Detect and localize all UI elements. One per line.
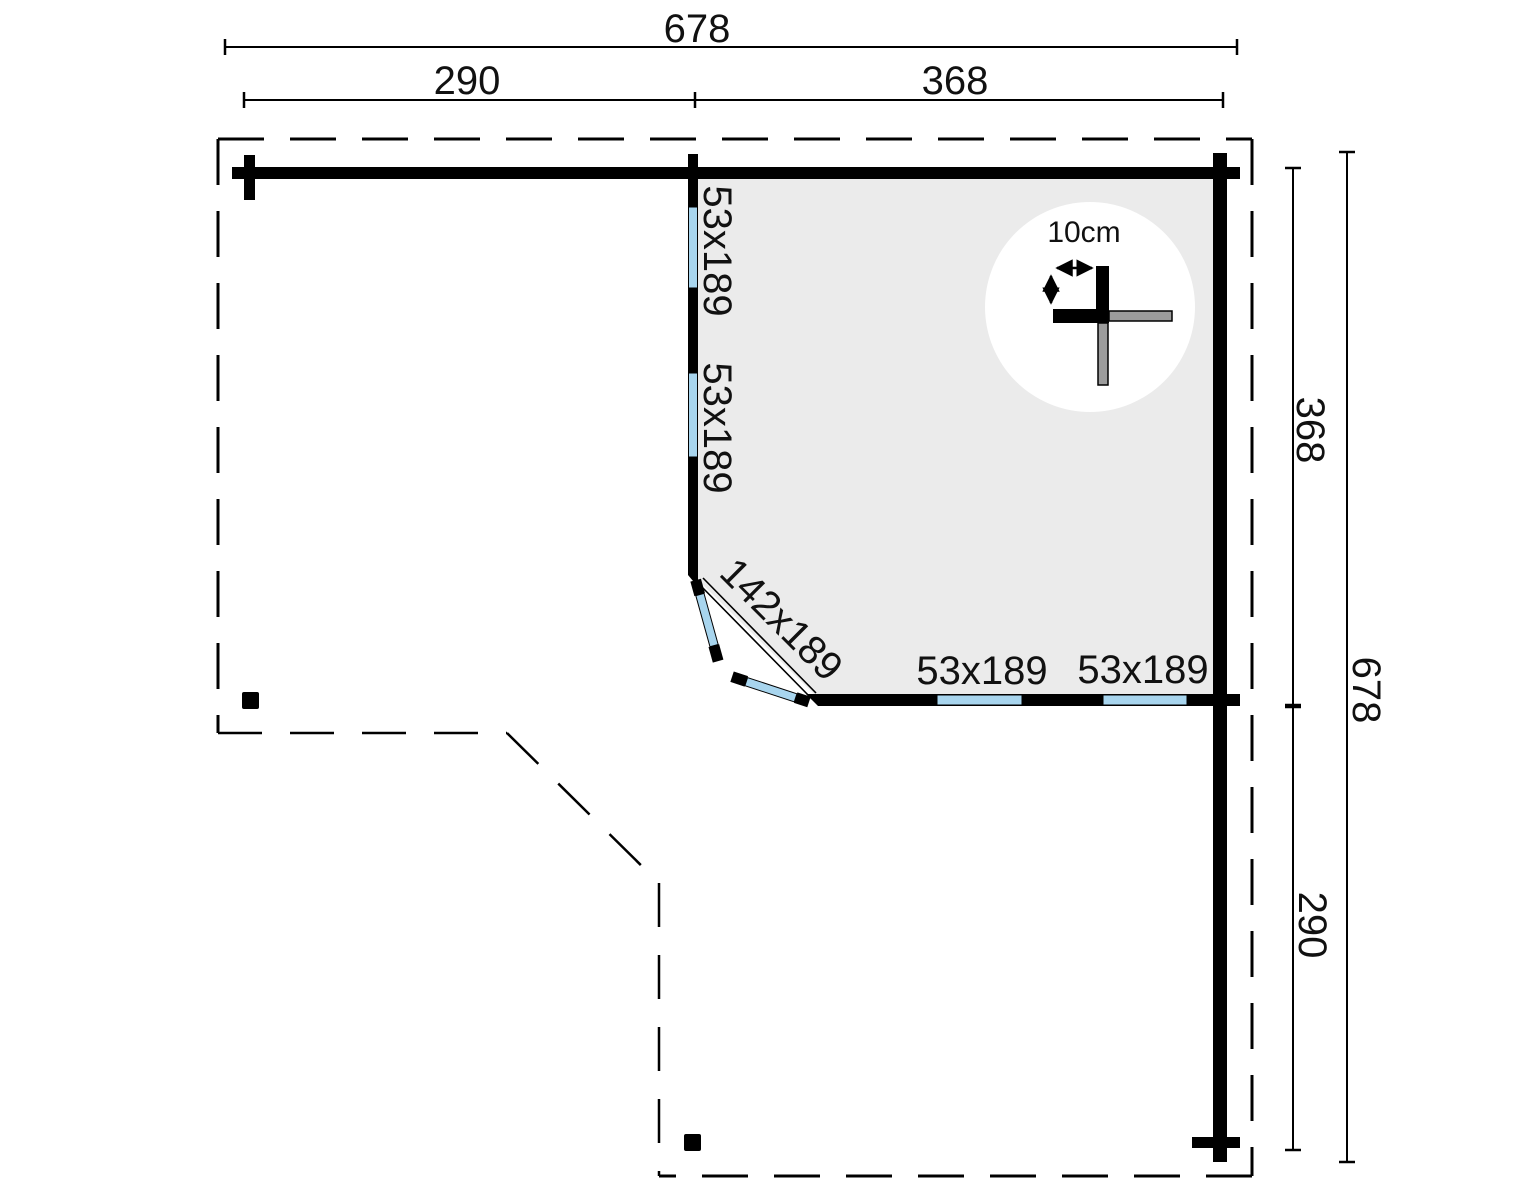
door-leaf-lower-glass <box>745 678 797 702</box>
terrace-edge-diagonal <box>507 733 659 883</box>
dimension-label-right-overall: 678 <box>1344 657 1388 724</box>
terrace-post-bottom <box>684 1134 701 1151</box>
top-wall <box>232 167 1240 179</box>
bottom-wall-window-right <box>1103 695 1187 705</box>
window-label-left-lower: 53x189 <box>695 362 739 493</box>
log-detail-dimension-label: 10cm <box>1047 216 1120 249</box>
window-label-bottom-right: 53x189 <box>1077 648 1208 692</box>
dimension-label-overall-width: 678 <box>664 7 731 51</box>
dimension-label-right-upper: 368 <box>1288 397 1332 464</box>
top-wall-left-log-end <box>244 155 255 200</box>
floor-plan-page: 10cm <box>0 0 1530 1188</box>
log-detail-black-horizontal-log <box>1053 309 1109 323</box>
dimension-label-right-lower: 290 <box>1290 892 1334 959</box>
bottom-wall-window-left <box>937 695 1022 705</box>
door-leaf-upper-end-stub <box>709 644 724 662</box>
door-leaf-upper-glass <box>696 593 718 646</box>
right-wall <box>1213 153 1227 1162</box>
window-label-bottom-left: 53x189 <box>916 649 1047 693</box>
terrace-post-left <box>242 692 259 709</box>
dimension-label-left-section: 290 <box>434 59 501 103</box>
floor-plan-drawing: 10cm <box>0 0 1530 1188</box>
dimension-label-right-section: 368 <box>922 59 989 103</box>
log-detail-gray-vertical-log <box>1098 323 1108 385</box>
right-wall-bottom-log-end <box>1192 1137 1240 1148</box>
window-label-left-upper: 53x189 <box>695 185 739 316</box>
log-detail-gray-horizontal-log <box>1109 311 1172 321</box>
